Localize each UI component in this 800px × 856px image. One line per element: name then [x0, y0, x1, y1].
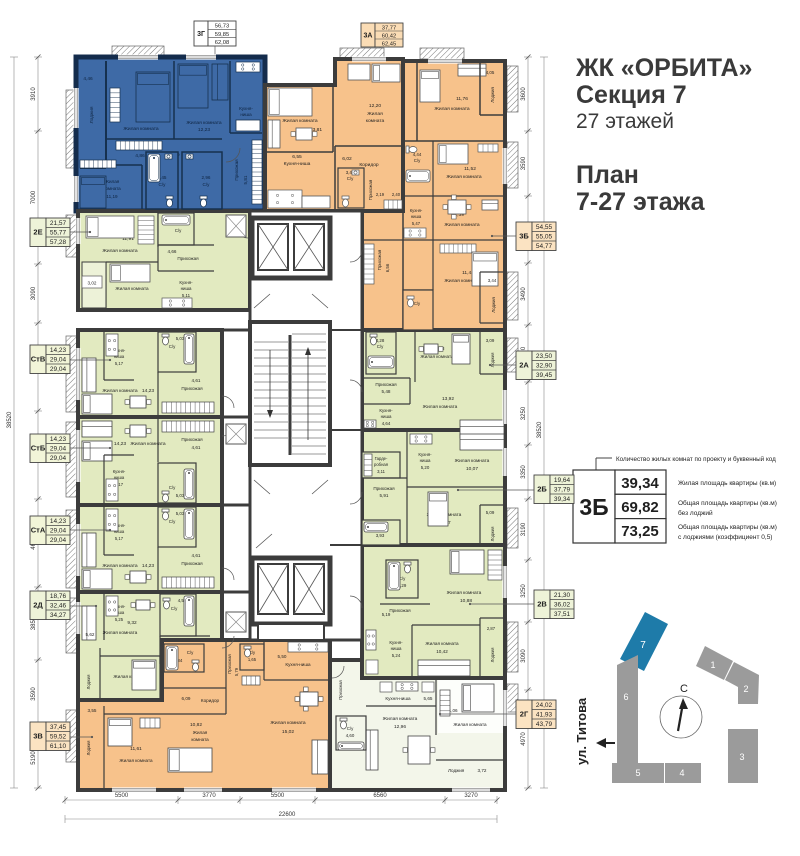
svg-text:комната: комната — [191, 737, 209, 742]
svg-text:3Б: 3Б — [519, 232, 529, 241]
svg-text:Жилая комната: Жилая комната — [420, 354, 454, 359]
svg-text:2Е: 2Е — [33, 228, 42, 237]
svg-text:21,30: 21,30 — [554, 592, 571, 599]
svg-text:3250: 3250 — [521, 406, 527, 420]
svg-text:Жилая комната: Жилая комната — [103, 630, 138, 636]
svg-text:36,02: 36,02 — [554, 601, 571, 608]
svg-text:5,79: 5,79 — [234, 667, 239, 676]
svg-text:Прихожая: Прихожая — [373, 486, 395, 491]
svg-text:59,52: 59,52 — [50, 733, 67, 740]
svg-text:Жилая комната: Жилая комната — [455, 458, 490, 464]
svg-text:37,79: 37,79 — [554, 486, 571, 493]
svg-text:Жилая комната: Жилая комната — [453, 722, 487, 727]
svg-text:4,28: 4,28 — [376, 338, 385, 343]
svg-text:5,50: 5,50 — [278, 654, 287, 659]
svg-text:15,02: 15,02 — [282, 729, 295, 735]
svg-text:Прихожая: Прихожая — [377, 249, 382, 270]
svg-text:С/у: С/у — [169, 485, 176, 490]
svg-text:1,65: 1,65 — [248, 657, 257, 662]
svg-text:5,65: 5,65 — [424, 696, 433, 701]
svg-text:Жилая комната: Жилая комната — [270, 720, 306, 726]
svg-text:Жилая комната: Жилая комната — [115, 286, 149, 291]
svg-text:3090: 3090 — [31, 286, 37, 300]
svg-text:5190: 5190 — [31, 751, 37, 765]
svg-text:3: 3 — [739, 752, 744, 762]
svg-text:2,96: 2,96 — [202, 175, 211, 180]
svg-text:29,04: 29,04 — [50, 527, 67, 534]
svg-text:Кухня-: Кухня- — [410, 208, 423, 213]
svg-text:Кухня-: Кухня- — [239, 106, 253, 111]
svg-text:5,24: 5,24 — [392, 653, 401, 658]
svg-text:без лоджий: без лоджий — [678, 509, 713, 517]
svg-text:ЖК «ОРБИТА»: ЖК «ОРБИТА» — [575, 54, 752, 82]
svg-text:Жилая комната: Жилая комната — [186, 120, 222, 126]
svg-text:6560: 6560 — [373, 793, 387, 799]
svg-text:Лоджия: Лоджия — [490, 648, 495, 663]
svg-text:5,03: 5,03 — [176, 493, 185, 498]
svg-text:54,55: 54,55 — [536, 224, 553, 231]
svg-text:5,17: 5,17 — [115, 536, 124, 541]
svg-text:3090: 3090 — [521, 649, 527, 663]
svg-text:Коридор: Коридор — [201, 698, 220, 703]
svg-text:10,07: 10,07 — [466, 466, 478, 472]
svg-text:4,86: 4,86 — [135, 153, 145, 159]
svg-text:3,02: 3,02 — [88, 281, 97, 286]
svg-text:Лоджия: Лоджия — [490, 527, 495, 542]
svg-text:робная: робная — [374, 462, 388, 467]
svg-text:61,10: 61,10 — [50, 743, 67, 750]
svg-text:6,56: 6,56 — [385, 263, 390, 272]
svg-text:Жилая комната: Жилая комната — [444, 222, 480, 228]
svg-text:Количество жилых комнат по про: Количество жилых комнат по проекту и бук… — [616, 455, 776, 463]
svg-text:39,45: 39,45 — [536, 372, 553, 379]
svg-text:5,62: 5,62 — [86, 632, 95, 637]
svg-text:Прихожая: Прихожая — [181, 437, 203, 442]
svg-text:ул. Титова: ул. Титова — [574, 697, 589, 765]
svg-text:Прихожая: Прихожая — [389, 608, 411, 613]
svg-text:38520: 38520 — [7, 411, 13, 428]
svg-text:3600: 3600 — [521, 87, 527, 101]
svg-text:37,51: 37,51 — [554, 611, 571, 618]
svg-text:Жилая комната: Жилая комната — [123, 126, 159, 132]
svg-text:С/у: С/у — [171, 606, 178, 611]
svg-text:3В: 3В — [33, 732, 43, 741]
svg-text:2,87: 2,87 — [487, 626, 496, 631]
svg-text:3,09: 3,09 — [486, 338, 495, 343]
svg-text:Кухня-: Кухня- — [379, 408, 393, 413]
svg-text:6,55: 6,55 — [292, 154, 302, 160]
svg-text:14,23: 14,23 — [50, 347, 67, 354]
svg-text:60,42: 60,42 — [382, 34, 397, 40]
svg-text:ниша: ниша — [240, 112, 252, 117]
svg-text:3,72: 3,72 — [478, 768, 487, 773]
svg-text:21,57: 21,57 — [50, 220, 67, 227]
svg-text:5500: 5500 — [271, 793, 285, 799]
svg-text:Кухня-ниша: Кухня-ниша — [284, 161, 311, 167]
svg-text:2,19: 2,19 — [376, 192, 385, 197]
svg-text:5,19: 5,19 — [382, 612, 391, 617]
svg-text:10,42: 10,42 — [436, 649, 448, 654]
svg-text:комната: комната — [366, 119, 385, 124]
svg-text:29,04: 29,04 — [50, 366, 67, 373]
svg-text:54,77: 54,77 — [536, 243, 553, 250]
svg-text:Жилая комната: Жилая комната — [130, 441, 166, 447]
svg-text:59,85: 59,85 — [215, 32, 230, 38]
svg-text:Прихожая: Прихожая — [177, 256, 199, 261]
svg-text:Общая площадь квартиры (кв.м): Общая площадь квартиры (кв.м) — [678, 523, 777, 531]
svg-text:Коридор: Коридор — [359, 162, 379, 168]
svg-text:39,34: 39,34 — [554, 496, 571, 503]
svg-text:5,03: 5,03 — [176, 511, 185, 516]
svg-text:32,46: 32,46 — [50, 602, 67, 609]
svg-text:4,05: 4,05 — [486, 70, 495, 75]
svg-text:4,60: 4,60 — [346, 733, 355, 738]
svg-text:Кухня-: Кухня- — [418, 452, 432, 457]
svg-text:11,76: 11,76 — [456, 96, 468, 102]
svg-text:14,23: 14,23 — [50, 436, 67, 443]
svg-text:5,25: 5,25 — [115, 617, 124, 622]
svg-text:3Б: 3Б — [579, 494, 608, 520]
svg-text:5,11: 5,11 — [182, 293, 191, 298]
svg-text:22600: 22600 — [279, 812, 296, 818]
svg-text:Жилая комната: Жилая комната — [423, 404, 458, 410]
svg-text:С/у: С/у — [203, 182, 211, 187]
svg-text:5,03: 5,03 — [176, 336, 185, 341]
svg-text:Прихожая: Прихожая — [181, 561, 203, 566]
svg-text:СтВ: СтВ — [31, 355, 46, 364]
svg-text:5,20: 5,20 — [421, 465, 430, 470]
svg-text:18,76: 18,76 — [50, 593, 67, 600]
svg-text:12,20: 12,20 — [369, 103, 382, 109]
svg-text:29,04: 29,04 — [50, 537, 67, 544]
svg-text:19,64: 19,64 — [554, 477, 571, 484]
svg-text:3770: 3770 — [202, 793, 216, 799]
svg-text:3350: 3350 — [521, 465, 527, 479]
svg-text:6,02: 6,02 — [342, 156, 352, 162]
svg-text:2А: 2А — [519, 361, 529, 370]
svg-text:6: 6 — [623, 692, 628, 702]
svg-text:3А: 3А — [364, 33, 373, 40]
svg-text:Лоджия: Лоджия — [86, 741, 91, 756]
svg-text:9,32: 9,32 — [127, 620, 137, 626]
svg-text:С/у: С/у — [414, 301, 421, 306]
svg-text:Лоджия: Лоджия — [89, 106, 95, 123]
svg-text:29,04: 29,04 — [50, 356, 67, 363]
svg-text:Жилая комната: Жилая комната — [447, 590, 482, 596]
svg-text:38520: 38520 — [537, 421, 543, 438]
svg-text:С/у: С/у — [159, 182, 167, 187]
svg-text:4: 4 — [679, 768, 684, 778]
svg-text:Жилая комната: Жилая комната — [102, 388, 138, 394]
svg-text:Лоджия: Лоджия — [490, 87, 495, 103]
svg-text:6,09: 6,09 — [182, 696, 191, 701]
svg-text:3190: 3190 — [521, 522, 527, 536]
svg-text:3,44: 3,44 — [488, 278, 497, 283]
svg-text:12,23: 12,23 — [198, 127, 211, 133]
svg-text:5500: 5500 — [115, 793, 129, 799]
svg-text:14,23: 14,23 — [114, 441, 127, 447]
svg-text:ниша: ниша — [381, 414, 392, 419]
svg-text:10,82: 10,82 — [190, 722, 202, 728]
svg-text:ниша: ниша — [181, 286, 192, 291]
svg-text:5: 5 — [635, 768, 640, 778]
svg-text:56,73: 56,73 — [215, 24, 230, 30]
svg-text:Лоджия: Лоджия — [86, 675, 91, 690]
svg-text:3490: 3490 — [521, 287, 527, 301]
svg-text:С: С — [680, 683, 688, 695]
svg-text:11,52: 11,52 — [464, 166, 476, 172]
svg-text:План: План — [576, 161, 639, 189]
svg-text:2Д: 2Д — [33, 601, 43, 610]
svg-text:с лоджиями (коэффициент 0,5): с лоджиями (коэффициент 0,5) — [678, 534, 772, 541]
svg-text:3270: 3270 — [464, 793, 478, 799]
svg-text:ниша: ниша — [391, 646, 402, 651]
svg-text:Прихожая: Прихожая — [227, 654, 232, 673]
svg-text:Жилая комната: Жилая комната — [434, 106, 470, 112]
svg-text:Прихожая: Прихожая — [338, 680, 343, 699]
svg-text:13,92: 13,92 — [442, 396, 454, 402]
svg-text:Жилая комната: Жилая комната — [446, 174, 482, 180]
svg-text:3,11: 3,11 — [377, 469, 386, 474]
svg-text:Кухня-: Кухня- — [179, 280, 193, 285]
svg-text:С/у: С/у — [377, 344, 384, 349]
svg-text:37,77: 37,77 — [382, 26, 397, 32]
svg-text:Кухня-ниша: Кухня-ниша — [385, 696, 411, 701]
svg-text:7000: 7000 — [31, 190, 37, 204]
svg-text:Жилая комната: Жилая комната — [119, 758, 153, 763]
svg-text:5,17: 5,17 — [115, 361, 124, 366]
svg-text:27 этажей: 27 этажей — [576, 110, 674, 133]
svg-text:4,66: 4,66 — [168, 249, 177, 254]
svg-text:С/у: С/у — [187, 650, 194, 655]
svg-text:3,55: 3,55 — [88, 708, 97, 713]
svg-text:69,82: 69,82 — [621, 499, 659, 516]
svg-text:3590: 3590 — [521, 156, 527, 170]
svg-text:34,27: 34,27 — [50, 612, 67, 619]
svg-text:24,02: 24,02 — [536, 702, 553, 709]
svg-text:2Г: 2Г — [520, 710, 529, 719]
svg-text:С/у: С/у — [414, 158, 421, 163]
svg-text:Жилая комната: Жилая комната — [425, 641, 459, 646]
svg-text:СтА: СтА — [31, 526, 46, 535]
svg-text:4,61: 4,61 — [192, 378, 201, 383]
svg-text:Жилая: Жилая — [367, 111, 383, 117]
svg-text:СтБ: СтБ — [31, 444, 46, 453]
svg-text:7: 7 — [640, 640, 646, 651]
svg-text:Прихожая: Прихожая — [234, 159, 239, 181]
svg-text:Жилая комната: Жилая комната — [102, 563, 138, 569]
svg-text:5,48: 5,48 — [382, 389, 391, 394]
svg-text:11,61: 11,61 — [130, 746, 142, 752]
svg-text:37,45: 37,45 — [50, 724, 67, 731]
svg-text:Прихожая: Прихожая — [375, 382, 397, 387]
svg-text:32,90: 32,90 — [536, 362, 553, 369]
svg-text:Кухня-: Кухня- — [113, 469, 126, 474]
svg-text:41,93: 41,93 — [536, 711, 553, 718]
svg-text:2Б: 2Б — [537, 485, 547, 494]
svg-text:5,81: 5,81 — [243, 175, 248, 184]
svg-text:3,93: 3,93 — [376, 533, 385, 538]
svg-text:С/у: С/у — [347, 176, 354, 181]
svg-text:43,79: 43,79 — [536, 721, 553, 728]
svg-text:3590: 3590 — [31, 687, 37, 701]
svg-text:2,40: 2,40 — [392, 192, 401, 197]
svg-text:39,34: 39,34 — [621, 475, 659, 492]
svg-text:ниша: ниша — [420, 458, 431, 463]
svg-text:3910: 3910 — [31, 87, 37, 101]
svg-text:Жилая комната: Жилая комната — [102, 248, 138, 254]
svg-text:Жилая: Жилая — [105, 179, 120, 184]
svg-text:14,23: 14,23 — [50, 518, 67, 525]
svg-text:55,05: 55,05 — [536, 233, 553, 240]
svg-text:2В: 2В — [537, 600, 547, 609]
svg-text:С/у: С/у — [347, 726, 354, 731]
svg-text:5,91: 5,91 — [380, 493, 389, 498]
svg-text:Жилая комната: Жилая комната — [282, 118, 318, 124]
svg-text:29,04: 29,04 — [50, 455, 67, 462]
svg-text:3250: 3250 — [521, 584, 527, 598]
svg-text:5,09: 5,09 — [486, 510, 495, 515]
svg-text:Кухня-ниша: Кухня-ниша — [285, 662, 311, 667]
svg-text:29,04: 29,04 — [50, 445, 67, 452]
svg-text:55,77: 55,77 — [50, 229, 67, 236]
svg-text:ниша: ниша — [411, 214, 422, 219]
svg-text:3Г: 3Г — [197, 31, 205, 38]
svg-text:4970: 4970 — [521, 732, 527, 746]
svg-text:11,19: 11,19 — [106, 194, 118, 199]
svg-text:1: 1 — [710, 660, 715, 670]
svg-text:23,50: 23,50 — [536, 353, 553, 360]
svg-text:12,96: 12,96 — [394, 724, 406, 730]
svg-text:Лоджия: Лоджия — [448, 768, 465, 773]
svg-text:С/у: С/у — [175, 228, 182, 233]
svg-text:Лоджия: Лоджия — [491, 297, 496, 313]
svg-text:62,08: 62,08 — [215, 40, 230, 46]
svg-text:4,46: 4,46 — [83, 76, 93, 82]
svg-text:5,47: 5,47 — [412, 221, 421, 226]
svg-text:Кухня-: Кухня- — [389, 640, 403, 645]
svg-text:Секция 7: Секция 7 — [576, 81, 687, 109]
svg-text:Прихожая: Прихожая — [368, 179, 373, 200]
svg-text:7-27 этажа: 7-27 этажа — [576, 188, 706, 216]
svg-text:14,23: 14,23 — [142, 563, 155, 569]
svg-text:Жилая комната: Жилая комната — [383, 716, 418, 722]
svg-text:С/у: С/у — [169, 519, 176, 524]
svg-text:Жилая площадь квартиры (кв.м): Жилая площадь квартиры (кв.м) — [678, 480, 776, 487]
svg-text:73,25: 73,25 — [621, 523, 659, 540]
svg-text:4,64: 4,64 — [382, 421, 391, 426]
svg-text:4,61: 4,61 — [192, 445, 201, 450]
svg-text:62,45: 62,45 — [382, 42, 397, 48]
svg-text:Жилая: Жилая — [193, 730, 208, 735]
svg-text:Гарде-: Гарде- — [375, 456, 388, 461]
svg-text:Общая площадь квартиры (кв.м): Общая площадь квартиры (кв.м) — [678, 499, 777, 507]
svg-text:14,23: 14,23 — [142, 388, 155, 394]
svg-text:4,61: 4,61 — [192, 553, 201, 558]
svg-text:Прихожая: Прихожая — [181, 386, 203, 391]
svg-text:С/у: С/у — [169, 344, 176, 349]
svg-text:2: 2 — [743, 684, 748, 694]
svg-text:57,28: 57,28 — [50, 239, 67, 246]
